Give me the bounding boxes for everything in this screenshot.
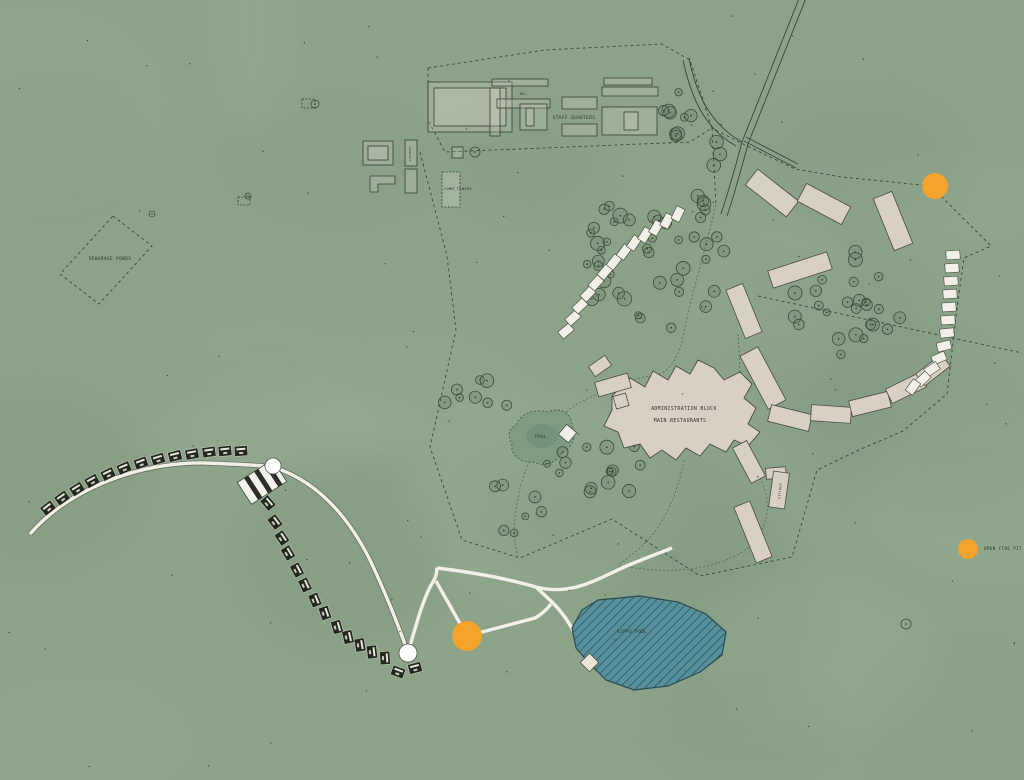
terrain-speck [863, 58, 864, 59]
tree-center-dot [459, 397, 461, 399]
tree-center-dot [559, 472, 561, 474]
terrain-speck [270, 622, 271, 623]
tree-center-dot [794, 292, 796, 294]
tree-center-dot [629, 219, 631, 221]
terrain-speck [469, 593, 470, 594]
terrain-speck [757, 476, 758, 477]
terrain-speck [44, 648, 45, 649]
tree-center-dot [609, 471, 611, 473]
tent-white [940, 328, 955, 338]
terrain-speck [466, 128, 467, 129]
tree-center-dot [546, 463, 548, 465]
tree-center-dot [675, 135, 677, 137]
tree-center-dot [878, 276, 880, 278]
tree-center-dot [607, 482, 609, 484]
terrain-speck [476, 262, 477, 263]
tree-center-dot [591, 298, 593, 300]
tree-center-dot [610, 274, 612, 276]
tree-center-dot [659, 282, 661, 284]
tree-center-dot [593, 227, 595, 229]
tree-center-dot [700, 217, 702, 219]
tree-center-dot [646, 248, 648, 250]
tree-center-dot [821, 279, 823, 281]
tree-center-dot [670, 327, 672, 329]
tree-center-dot [905, 623, 907, 625]
terrain-speck [868, 284, 869, 285]
tree-center-dot [653, 216, 655, 218]
terrain-speck [208, 765, 209, 766]
terrain-speck [506, 671, 507, 672]
tree-center-dot [690, 115, 692, 117]
terrain-speck [508, 80, 509, 81]
tree-center-dot [444, 402, 446, 404]
tent-dark [354, 638, 366, 653]
tree-center-dot [678, 239, 680, 241]
label-laundry: LAUNDRY [408, 145, 412, 160]
tent-white [946, 250, 961, 260]
tree-center-dot [678, 91, 680, 93]
tree-center-dot [702, 200, 704, 202]
terrain-speck [704, 308, 705, 309]
terrain-speck [548, 250, 549, 251]
terrain-speck [736, 708, 737, 709]
poi-marker-northeast[interactable] [922, 173, 948, 199]
terrain-speck [569, 590, 570, 591]
tree-center-dot [502, 484, 504, 486]
tree-center-dot [494, 485, 496, 487]
terrain-speck [406, 346, 407, 347]
terrain-speck [262, 151, 263, 152]
terrain-speck [605, 594, 606, 595]
site-plan-page: SEWARAGE PONDSSTAFF QUARTERSCOMM TOWERSB… [0, 0, 1024, 780]
terrain-speck [720, 124, 721, 125]
terrain-speck [994, 362, 995, 363]
terrain-speck [578, 433, 579, 434]
tree-center-dot [705, 306, 707, 308]
tent-dark [202, 446, 216, 458]
terrain-speck [971, 730, 972, 731]
terrain-patch [298, 330, 539, 449]
terrain-patch [242, 466, 443, 647]
tree-center-dot [855, 259, 857, 261]
tree-center-dot [872, 324, 874, 326]
poi-marker-open-fire-pit[interactable] [958, 539, 978, 559]
terrain-speck [618, 543, 619, 544]
tree-center-dot [475, 396, 477, 398]
tent-white [944, 276, 959, 286]
tent-white [942, 302, 957, 312]
terrain-speck [792, 35, 793, 36]
terrain-speck [399, 631, 400, 632]
terrain-speck [910, 259, 911, 260]
tree-center-dot [247, 195, 249, 197]
road-node-upper[interactable] [265, 458, 281, 474]
terrain-speck [219, 356, 220, 357]
terrain-speck [349, 562, 350, 563]
tree-center-dot [858, 300, 860, 302]
poi-marker-trail-junction[interactable] [452, 621, 482, 651]
terrain-speck [503, 216, 504, 217]
tree-center-dot [713, 164, 715, 166]
tree-center-dot [863, 338, 865, 340]
tree-center-dot [603, 208, 605, 210]
tree-center-dot [697, 195, 699, 197]
label-comm-towers: COMM TOWERS [444, 187, 472, 191]
terrain-speck [368, 26, 369, 27]
tree-center-dot [716, 141, 718, 143]
tree-center-dot [878, 308, 880, 310]
terrain-speck [701, 306, 702, 307]
tree-center-dot [855, 308, 857, 310]
tree-center-dot [474, 151, 476, 153]
terrain-speck [139, 210, 140, 211]
terrain-speck [192, 445, 193, 446]
label-staff-quarters: STAFF QUARTERS [553, 115, 596, 121]
terrain-speck [808, 726, 809, 727]
terrain-speck [19, 88, 20, 89]
terrain-speck [304, 42, 305, 43]
tree-center-dot [565, 462, 567, 464]
terrain-speck [167, 375, 168, 376]
tree-center-dot [693, 236, 695, 238]
terrain-speck [366, 690, 367, 691]
tree-center-dot [719, 153, 721, 155]
terrain-speck [999, 275, 1000, 276]
tree-center-dot [840, 354, 842, 356]
terrain-speck [622, 175, 623, 176]
tree-center-dot [624, 298, 626, 300]
tree-center-dot [606, 241, 608, 243]
tree-center-dot [586, 263, 588, 265]
terrain-speck [307, 192, 308, 193]
terrain-speck [772, 219, 773, 220]
label-main-restaurants: MAIN RESTAURANTS [654, 418, 707, 424]
label-block-b4: B4. [520, 92, 527, 96]
tree-center-dot [586, 446, 588, 448]
tent-dark [380, 651, 391, 665]
tree-center-dot [598, 294, 600, 296]
tree-center-dot [598, 265, 600, 267]
tree-center-dot [866, 304, 868, 306]
terrain-speck [306, 559, 307, 560]
terrain-speck [781, 121, 782, 122]
terrain-speck [376, 56, 377, 57]
tree-center-dot [716, 236, 718, 238]
terrain-speck [798, 256, 799, 257]
terrain-speck [986, 404, 987, 405]
terrain-speck [684, 670, 685, 671]
terrain-speck [285, 489, 286, 490]
tree-center-dot [887, 328, 889, 330]
tree-center-dot [590, 487, 592, 489]
tree-center-dot [706, 243, 708, 245]
tree-center-dot [628, 490, 630, 492]
tent-white [943, 289, 958, 299]
label-hippo-pool: HIPPO POOL [617, 629, 647, 635]
terrain-speck [812, 453, 813, 454]
tree-center-dot [487, 402, 489, 404]
tree-center-dot [590, 232, 592, 234]
tree-center-dot [613, 221, 615, 223]
tree-center-dot [676, 279, 678, 281]
tree-center-dot [606, 446, 608, 448]
terrain-speck [413, 331, 414, 332]
tree-center-dot [847, 301, 849, 303]
tree-center-dot [541, 511, 543, 513]
tree-center-dot [794, 316, 796, 318]
terrain-speck [830, 378, 831, 379]
terrain-speck [171, 574, 172, 575]
terrain-speck [917, 154, 918, 155]
terrain-speck [28, 501, 29, 502]
tree-center-dot [705, 258, 707, 260]
tree-center-dot [456, 389, 458, 391]
terrain-speck [614, 639, 615, 640]
tree-center-dot [678, 291, 680, 293]
terrain-speck [517, 172, 518, 173]
terrain-speck [89, 766, 90, 767]
tent-white [941, 315, 956, 325]
terrain-speck [407, 520, 408, 521]
tree-center-dot [619, 215, 621, 217]
terrain-speck [87, 40, 88, 41]
tree-center-dot [899, 317, 901, 319]
tree-center-dot [798, 324, 800, 326]
tent-dark [366, 645, 378, 659]
tree-center-dot [853, 281, 855, 283]
tree-center-dot [562, 451, 564, 453]
tree-center-dot [597, 243, 599, 245]
terrain-speck [758, 617, 759, 618]
tent-dark [234, 446, 248, 457]
terrain-speck [952, 580, 953, 581]
tree-center-dot [855, 334, 857, 336]
terrain-speck [1014, 642, 1015, 643]
terrain-speck [270, 742, 271, 743]
label-administration-block: ADMINISTRATION BLOCK [651, 406, 717, 412]
terrain-speck [189, 63, 190, 64]
tree-center-dot [506, 404, 508, 406]
tree-center-dot [534, 496, 536, 498]
tree-center-dot [838, 338, 840, 340]
road-node-lower[interactable] [399, 644, 417, 662]
tree-center-dot [723, 250, 725, 252]
terrain-speck [586, 389, 587, 390]
terrain-speck [712, 202, 713, 203]
terrain-speck [391, 598, 392, 599]
tree-center-dot [682, 268, 684, 270]
tree-center-dot [638, 314, 640, 316]
terrain-speck [835, 389, 836, 390]
terrain-speck [8, 632, 9, 633]
terrain-speck [660, 681, 661, 682]
tree-center-dot [639, 464, 641, 466]
tree-center-dot [815, 290, 817, 292]
tree-center-dot [826, 312, 828, 314]
tree-center-dot [486, 380, 488, 382]
terrain-speck [712, 91, 713, 92]
terrain-speck [691, 124, 692, 125]
terrain-speck [1005, 423, 1006, 424]
tree-center-dot [151, 213, 153, 215]
label-open-fire-pit: OPEN FIRE PIT [984, 546, 1022, 551]
tent-dark [218, 445, 232, 456]
tree-center-dot [713, 291, 715, 293]
tree-center-dot [503, 530, 505, 532]
lodge-building [810, 405, 851, 424]
terrain-speck [731, 15, 732, 16]
label-sewerage-ponds: SEWARAGE PONDS [89, 256, 132, 262]
tree-center-dot [818, 305, 820, 307]
terrain-speck [692, 211, 693, 212]
tree-center-dot [525, 516, 527, 518]
terrain-speck [448, 420, 449, 421]
label-pool: POOL [535, 434, 547, 439]
terrain-speck [754, 73, 755, 74]
terrain-speck [682, 393, 683, 394]
terrain-speck [420, 536, 421, 537]
terrain-speck [385, 263, 386, 264]
tree-center-dot [652, 237, 654, 239]
tree-center-dot [663, 110, 665, 112]
tree-center-dot [609, 205, 611, 207]
tree-center-dot [513, 532, 515, 534]
terrain-speck [146, 65, 147, 66]
terrain-speck [552, 535, 553, 536]
site-plan-map: SEWARAGE PONDSSTAFF QUARTERSCOMM TOWERSB… [0, 0, 1024, 780]
tent-white [945, 263, 960, 273]
terrain-speck [854, 522, 855, 523]
